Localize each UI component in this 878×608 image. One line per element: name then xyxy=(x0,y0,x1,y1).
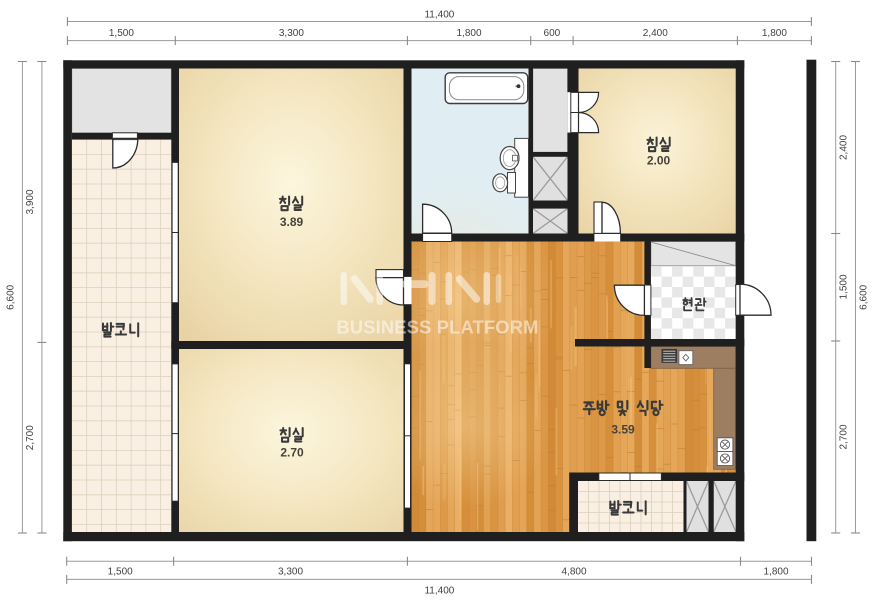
svg-text:3.59: 3.59 xyxy=(611,423,635,437)
svg-text:3.89: 3.89 xyxy=(280,215,304,229)
svg-text:2,400: 2,400 xyxy=(643,28,668,39)
svg-text:1,800: 1,800 xyxy=(763,567,788,578)
svg-text:11,400: 11,400 xyxy=(424,10,454,21)
svg-text:2.00: 2.00 xyxy=(647,154,671,168)
svg-text:11,400: 11,400 xyxy=(424,586,454,597)
svg-text:6,600: 6,600 xyxy=(859,284,870,309)
svg-text:1,500: 1,500 xyxy=(109,28,134,39)
svg-text:3,300: 3,300 xyxy=(278,567,303,578)
svg-text:1,500: 1,500 xyxy=(839,274,850,299)
svg-text:3,900: 3,900 xyxy=(25,189,36,214)
svg-text:1,800: 1,800 xyxy=(456,28,481,39)
svg-text:1,800: 1,800 xyxy=(762,28,787,39)
svg-text:4,800: 4,800 xyxy=(561,567,586,578)
svg-text:3,300: 3,300 xyxy=(279,28,304,39)
svg-text:2.70: 2.70 xyxy=(280,446,304,460)
svg-text:6,600: 6,600 xyxy=(6,284,17,309)
svg-text:BUSINESS PLATFORM: BUSINESS PLATFORM xyxy=(336,317,538,338)
svg-text:2,400: 2,400 xyxy=(839,135,850,160)
svg-text:600: 600 xyxy=(544,28,561,39)
svg-text:2,700: 2,700 xyxy=(839,424,850,449)
svg-text:2,700: 2,700 xyxy=(25,425,36,450)
svg-text:1,500: 1,500 xyxy=(108,567,133,578)
